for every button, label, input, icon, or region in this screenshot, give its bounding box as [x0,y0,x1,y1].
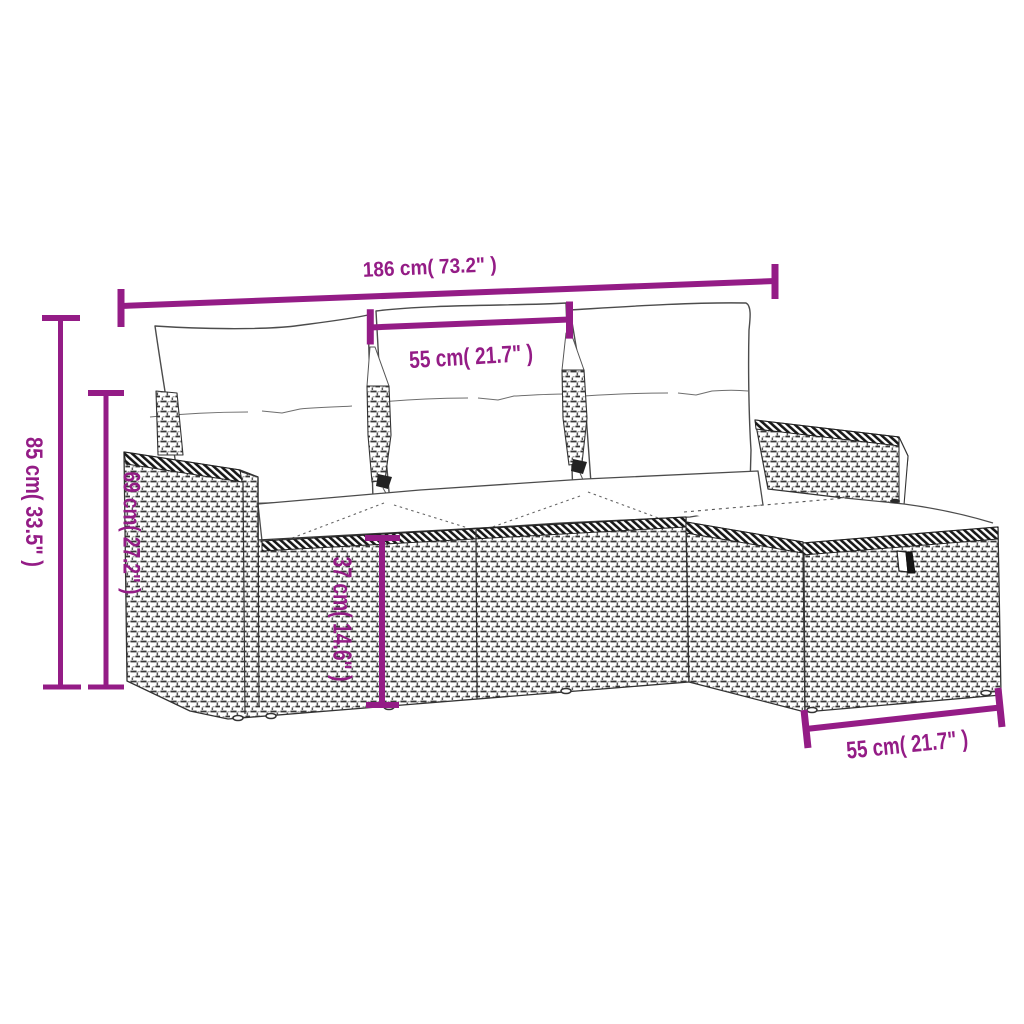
svg-text:69 cm( 27.2" ): 69 cm( 27.2" ) [118,472,145,595]
svg-text:37 cm( 14.6" ): 37 cm( 14.6" ) [328,557,358,682]
svg-text:85 cm( 33.5" ): 85 cm( 33.5" ) [20,437,47,567]
